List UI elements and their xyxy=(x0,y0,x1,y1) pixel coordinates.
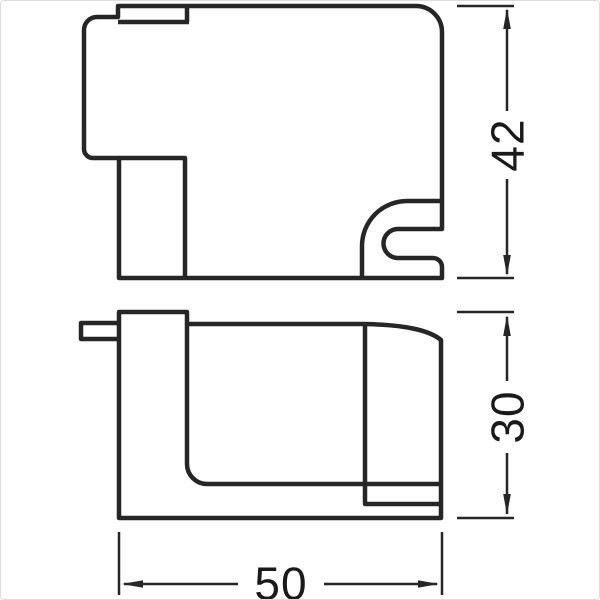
drawing-canvas: 42 30 50 xyxy=(0,0,600,600)
arrow-right-50 xyxy=(418,580,439,588)
front-view-outline xyxy=(119,312,441,518)
arrow-down-42 xyxy=(503,255,511,276)
arrow-up-30 xyxy=(503,315,511,336)
dim-label-width: 50 xyxy=(254,558,307,599)
part-outlines xyxy=(81,6,442,518)
top-view-snap-hook xyxy=(362,201,442,278)
top-view-clip-seam xyxy=(118,6,189,22)
dim-label-front-height: 30 xyxy=(482,390,534,443)
top-view-outline xyxy=(84,6,442,278)
front-view-left-tab xyxy=(81,323,118,339)
dim-label-side-height: 42 xyxy=(482,118,534,171)
front-view-end-cap-seam xyxy=(365,324,441,504)
arrow-left-50 xyxy=(122,580,143,588)
dimension-drawing: 42 30 50 xyxy=(1,1,599,599)
top-view-foot-seam xyxy=(119,158,185,278)
dimension-arrowheads xyxy=(122,8,511,588)
arrow-up-42 xyxy=(503,8,511,29)
dimension-labels: 42 30 50 xyxy=(254,118,533,599)
front-view-foot-column xyxy=(187,324,441,484)
arrow-down-30 xyxy=(503,494,511,515)
dimension-lines xyxy=(119,6,514,595)
